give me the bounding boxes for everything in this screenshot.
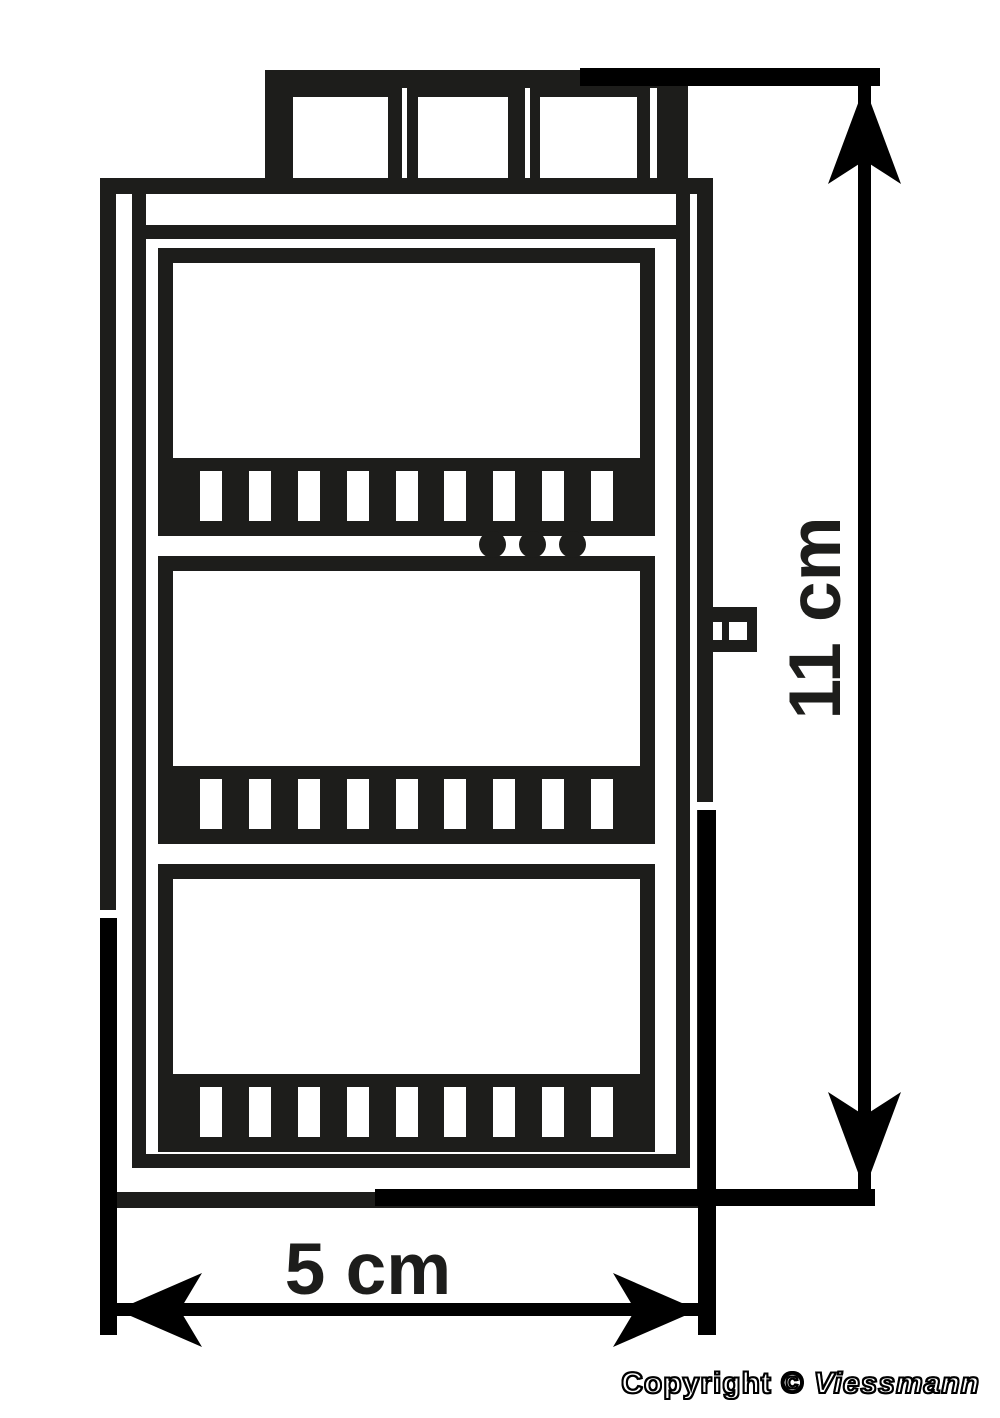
copyright-watermark: Copyright © Viessmann [621,1367,980,1401]
slat-slot [347,1087,369,1137]
body-inner-frame-bottom [146,1154,676,1168]
louver-panel [158,556,655,844]
roof-mullion-slit [525,88,530,178]
louver-panel [158,864,655,1152]
brand-name: Viessmann [814,1367,980,1400]
width-dimension-extension-left [100,918,117,1335]
slat-slot [591,1087,613,1137]
panel-rail [173,458,640,471]
slat-slot [249,1087,271,1137]
slat-slot [298,1087,320,1137]
roof-section [265,70,688,193]
body-inner-frame-left [132,194,146,1168]
slat-slot [249,471,271,521]
louver-panel [158,248,655,536]
body-inner-frame-right [676,194,690,1168]
side-latch-hole [729,622,747,640]
height-dimension-label: 11 cm [776,458,856,778]
panel-rail [173,1074,640,1087]
roof-opening [293,97,388,178]
panel-slat-row [173,471,640,521]
indicator-dot [479,531,506,558]
body-inner-frame-top [146,225,676,239]
width-extension-right-notch [696,802,714,810]
slat-slot [493,471,515,521]
slat-slot [493,1087,515,1137]
panel-window [173,571,640,766]
slat-slot [396,1087,418,1137]
slat-slot [200,471,222,521]
width-extension-left-notch [100,910,117,918]
roof-opening [540,97,637,178]
slat-slot [249,779,271,829]
panel-window [173,263,640,458]
roof-opening [418,97,508,178]
slat-slot [591,779,613,829]
technical-drawing: 11 cm 5 cm Copyright © Viessmann [0,0,1000,1418]
height-dimension-extension-bottom [375,1189,875,1206]
slat-slot [542,471,564,521]
slat-slot [298,779,320,829]
slat-slot [493,779,515,829]
roof-mullion-slit [650,88,657,178]
panel-slat-row [173,779,640,829]
slat-slot [298,471,320,521]
slat-slot [444,1087,466,1137]
slat-slot [542,1087,564,1137]
slat-slot [396,779,418,829]
slat-slot [591,471,613,521]
width-dimension-label: 5 cm [218,1230,518,1310]
slat-slot [347,471,369,521]
height-dimension-line [858,86,871,1190]
panel-rail [173,766,640,779]
slat-slot [200,1087,222,1137]
slat-slot [542,779,564,829]
slat-slot [396,471,418,521]
width-dimension-extension-right [698,810,716,1335]
indicator-dot [559,531,586,558]
side-latch-notch [713,622,722,640]
panel-window [173,879,640,1074]
panel-slat-row [173,1087,640,1137]
copyright-text: Copyright © [621,1367,813,1400]
slat-slot [444,779,466,829]
height-dimension-extension-top [580,68,880,86]
slat-slot [200,779,222,829]
roof-mullion-slit [402,88,407,178]
slat-slot [444,471,466,521]
slat-slot [347,779,369,829]
indicator-dot [519,531,546,558]
